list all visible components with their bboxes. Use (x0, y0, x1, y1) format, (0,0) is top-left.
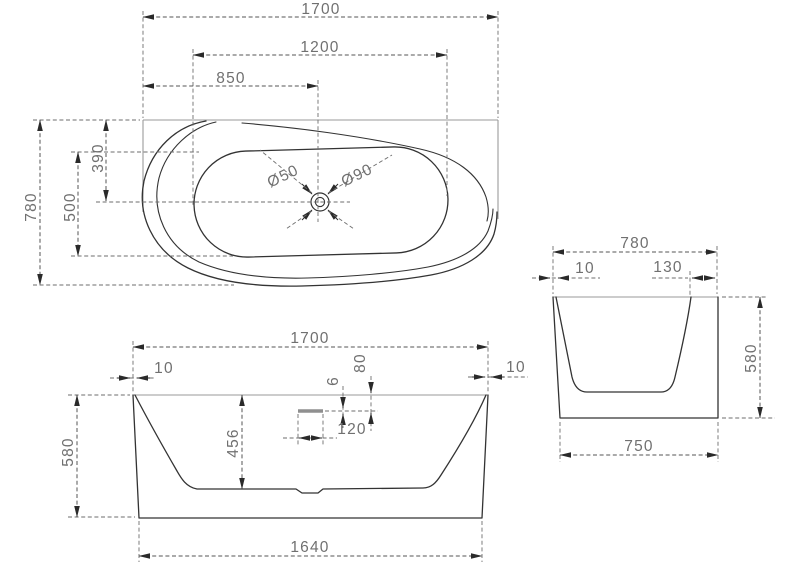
dim-label-side-rim-left: 10 (575, 260, 595, 277)
technical-drawing-canvas: Ø50 Ø90 1700 1200 850 780 500 (0, 0, 800, 571)
dim-label-front-rim-right: 10 (506, 359, 526, 376)
side-view: 780 10 130 580 750 (532, 235, 775, 462)
dim-label-top-drain-offset-y: 390 (90, 143, 107, 172)
tub-side-profile (553, 297, 718, 418)
dim-label-front-overall-height: 580 (60, 437, 77, 466)
dim-label-front-overflow-width: 120 (337, 421, 366, 438)
dim-label-side-deck-right: 130 (653, 259, 682, 276)
tub-front-profile (133, 395, 488, 518)
dim-label-front-overflow-below-rim: 80 (352, 353, 369, 373)
dim-label-side-overall-width: 780 (620, 235, 649, 252)
dim-label-front-overflow-height: 6 (325, 376, 342, 386)
front-view-extension-lines (68, 341, 528, 562)
dim-label-front-basin-depth: 456 (225, 428, 242, 457)
side-view-dimension-lines (539, 252, 760, 455)
dim-label-drain-recess-diameter: Ø90 (339, 161, 376, 191)
drain-icon (260, 150, 392, 229)
dim-label-top-basin-length: 1200 (300, 39, 339, 56)
drawing-sheet: Ø50 Ø90 1700 1200 850 780 500 (0, 0, 800, 571)
tub-side-inner-profile (556, 297, 691, 392)
dim-label-top-basin-width: 500 (62, 192, 79, 221)
dim-label-drain-diameter: Ø50 (265, 162, 302, 192)
dim-label-side-overall-height: 580 (743, 343, 760, 372)
front-view: 1700 10 10 580 456 6 80 120 1640 (60, 330, 528, 562)
tub-outline-top (142, 121, 497, 286)
dim-label-side-base-width: 750 (624, 438, 653, 455)
front-view-dimension-lines (77, 347, 504, 556)
dim-label-top-overall-length: 1700 (301, 1, 340, 18)
top-view: Ø50 Ø90 1700 1200 850 780 500 (23, 1, 498, 286)
dim-label-front-base-length: 1640 (290, 539, 329, 556)
dim-label-top-overall-width: 780 (23, 192, 40, 221)
dim-label-front-overall-length: 1700 (290, 330, 329, 347)
dim-label-top-drain-offset-x: 850 (216, 70, 245, 87)
dim-label-front-rim-left: 10 (154, 360, 174, 377)
